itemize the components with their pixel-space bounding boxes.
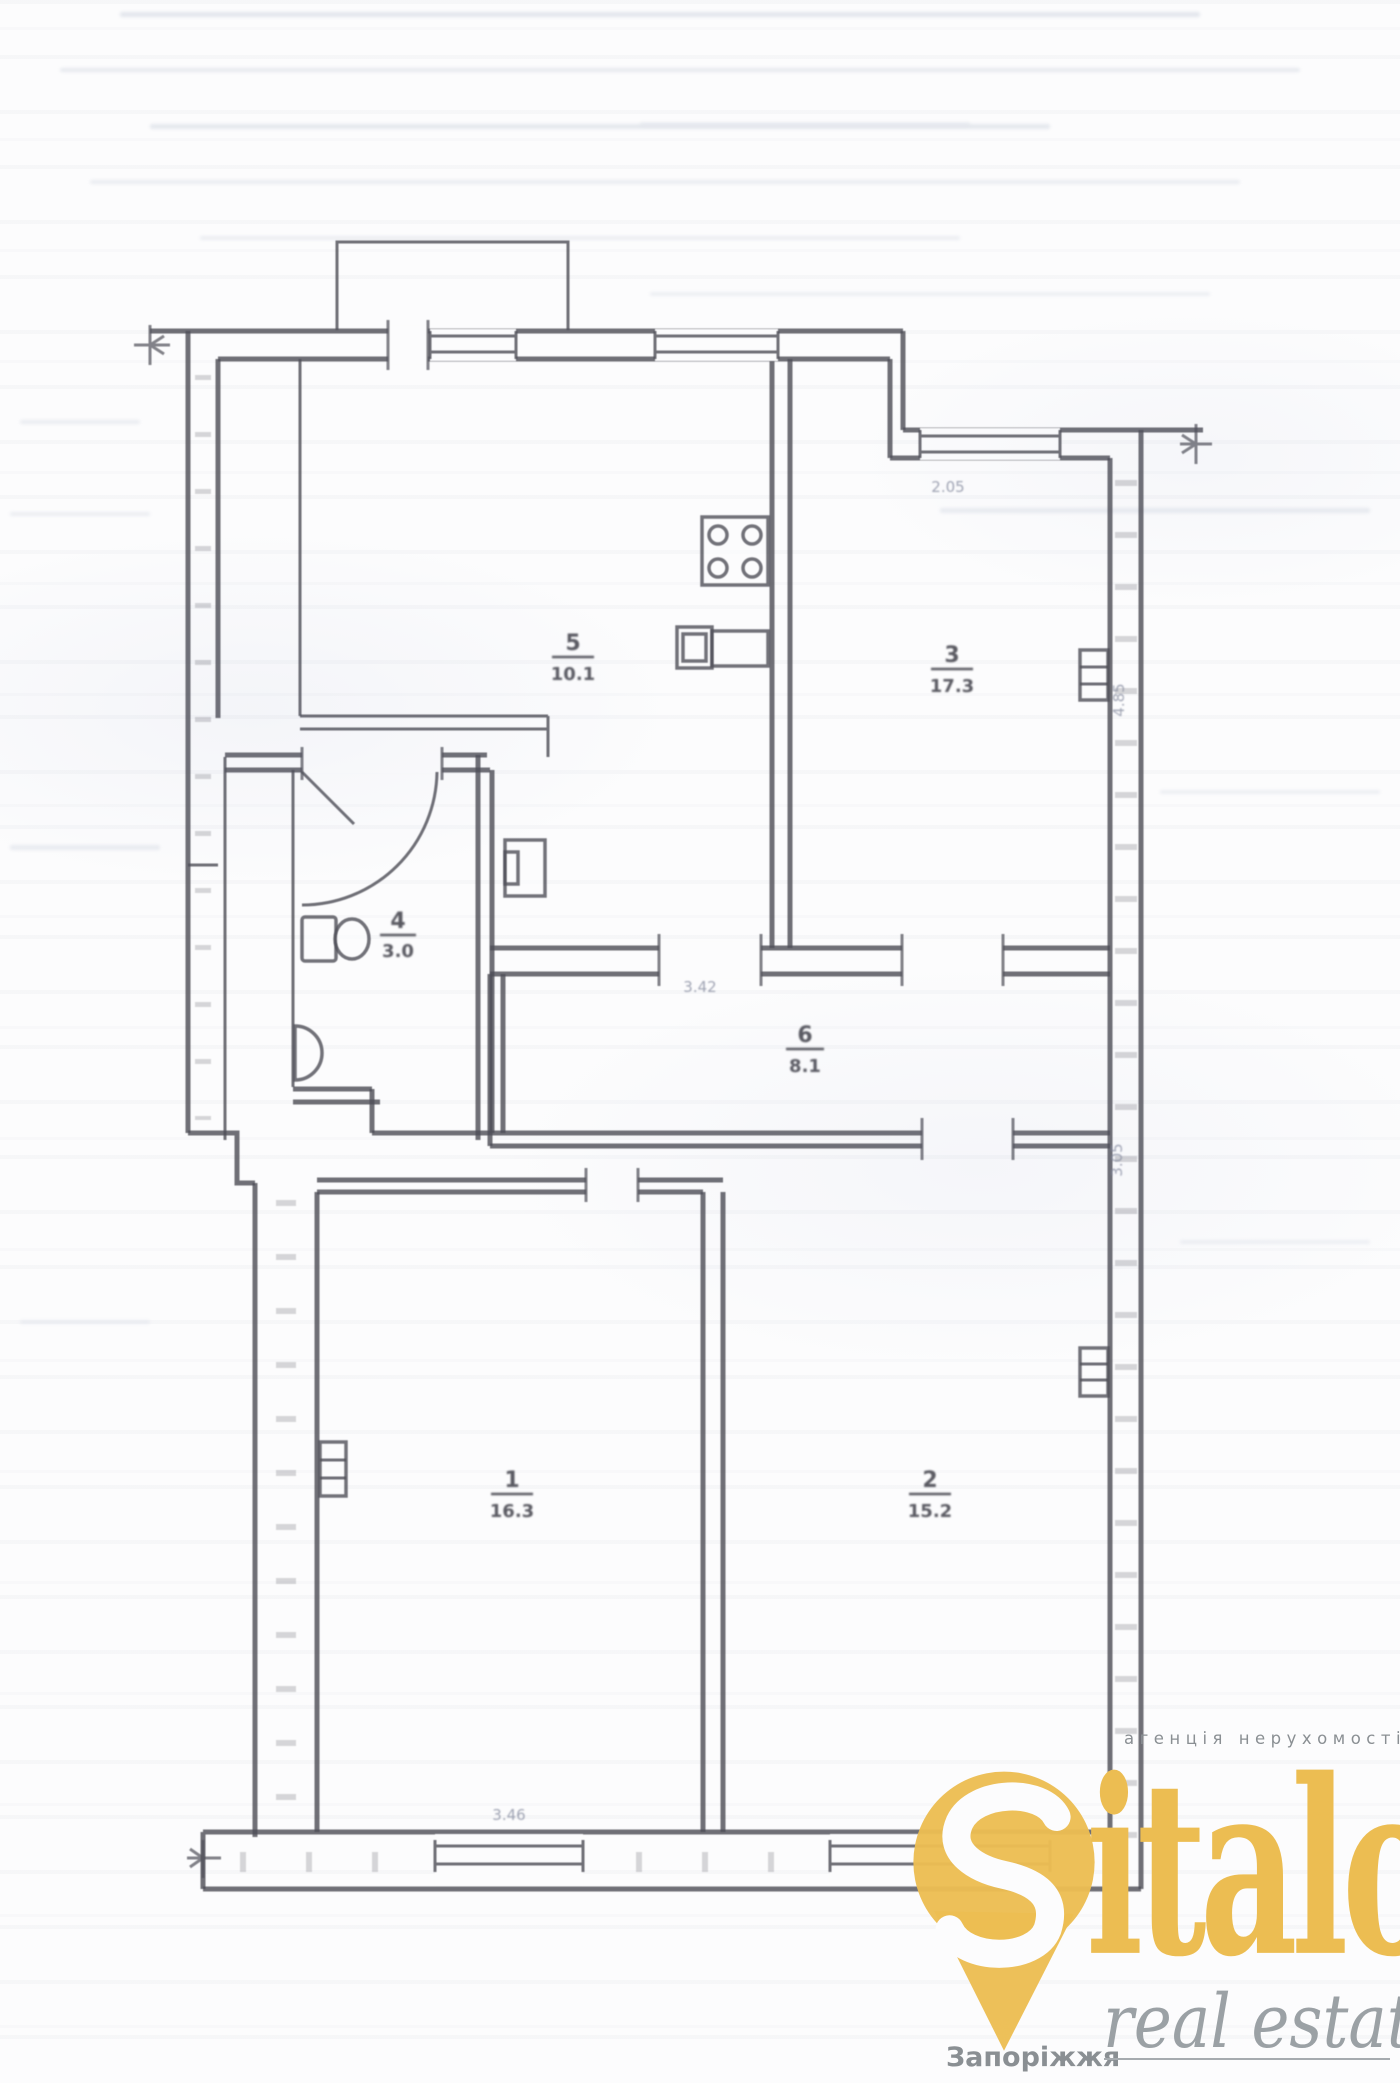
svg-text:3.0: 3.0 bbox=[382, 941, 414, 962]
washbasin-icon bbox=[295, 1026, 322, 1080]
radiator-icon bbox=[1080, 1348, 1108, 1396]
svg-text:5: 5 bbox=[565, 631, 580, 656]
svg-text:6: 6 bbox=[797, 1023, 812, 1048]
svg-text:10.1: 10.1 bbox=[551, 664, 595, 685]
svg-text:4: 4 bbox=[390, 909, 405, 934]
room-label-kitchen: 5 10.1 bbox=[551, 631, 595, 685]
svg-text:17.3: 17.3 bbox=[930, 676, 974, 697]
room-label-room2: 2 15.2 bbox=[908, 1468, 952, 1522]
svg-text:16.3: 16.3 bbox=[490, 1501, 534, 1522]
svg-text:8.1: 8.1 bbox=[789, 1056, 821, 1077]
window bbox=[435, 1834, 583, 1886]
radiator-icon bbox=[1080, 650, 1108, 700]
window bbox=[830, 1834, 1050, 1886]
room-label-room1: 1 16.3 bbox=[490, 1468, 534, 1522]
dimension-text: 3.46 bbox=[492, 1806, 525, 1824]
svg-text:1: 1 bbox=[504, 1468, 519, 1493]
svg-text:15.2: 15.2 bbox=[908, 1501, 952, 1522]
dimension-text: 4.85 bbox=[1110, 683, 1128, 716]
svg-text:3: 3 bbox=[944, 643, 959, 668]
boiler-icon bbox=[505, 840, 545, 896]
scanned-floor-plan-page: 5 10.1 3 17.3 4 3.0 6 8.1 1 bbox=[0, 0, 1400, 2083]
room-label-hallway: 6 8.1 bbox=[786, 1023, 824, 1077]
bath-door-arc bbox=[302, 772, 437, 905]
door-openings bbox=[302, 320, 1013, 1202]
radiator-icon bbox=[320, 1442, 346, 1496]
toilet-icon bbox=[302, 917, 369, 961]
balcony-outline bbox=[337, 242, 568, 330]
stove-icon bbox=[702, 517, 768, 585]
window bbox=[430, 329, 516, 361]
window bbox=[655, 329, 778, 361]
room-label-bathroom: 4 3.0 bbox=[380, 909, 416, 962]
floor-plan-drawing: 5 10.1 3 17.3 4 3.0 6 8.1 1 bbox=[0, 0, 1400, 2083]
dimension-text: 2.05 bbox=[931, 478, 964, 496]
dimension-text: 3.42 bbox=[683, 978, 716, 996]
dimension-text: 3.05 bbox=[1108, 1143, 1126, 1176]
svg-text:2: 2 bbox=[922, 1468, 937, 1493]
window bbox=[920, 428, 1060, 460]
room-label-room3: 3 17.3 bbox=[930, 643, 974, 697]
room-labels: 5 10.1 3 17.3 4 3.0 6 8.1 1 bbox=[380, 631, 974, 1522]
kitchen-sink-icon bbox=[677, 627, 768, 668]
outer-walls bbox=[134, 325, 1212, 1889]
interior-walls bbox=[225, 359, 1110, 1832]
